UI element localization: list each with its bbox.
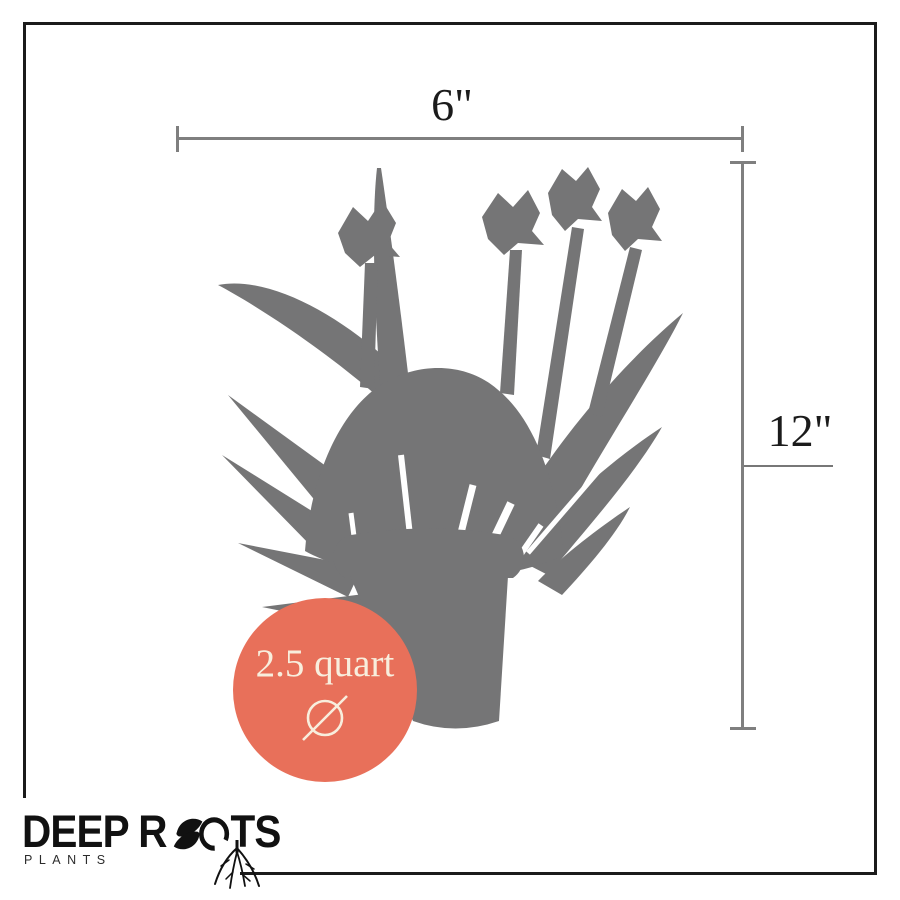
height-dimension-tick-top — [730, 161, 756, 164]
height-dimension-tick-bottom — [730, 727, 756, 730]
height-dimension-label: 12" — [750, 404, 850, 457]
frame-border-top — [23, 22, 877, 25]
volume-badge-label: 2.5 quart — [256, 644, 395, 685]
brand-text-left: DEEP R — [22, 808, 167, 856]
brand-logo: DEEP R TS PLANTS — [22, 808, 302, 894]
frame-border-bottom — [240, 872, 877, 875]
height-label-underline — [744, 465, 833, 467]
width-dimension-tick-left — [176, 126, 179, 152]
width-dimension-label: 6" — [392, 78, 512, 131]
diameter-icon — [294, 689, 356, 747]
volume-badge: 2.5 quart — [233, 598, 417, 782]
product-dimension-graphic: { "dimensions": { "width_label": "6\"", … — [0, 0, 900, 900]
frame-border-left — [23, 22, 26, 798]
width-dimension-tick-right — [741, 126, 744, 152]
width-dimension-line — [177, 137, 743, 140]
roots-icon — [208, 840, 266, 890]
height-dimension-line — [741, 163, 744, 729]
frame-border-right — [874, 22, 877, 875]
brand-subtitle: PLANTS — [24, 853, 112, 867]
